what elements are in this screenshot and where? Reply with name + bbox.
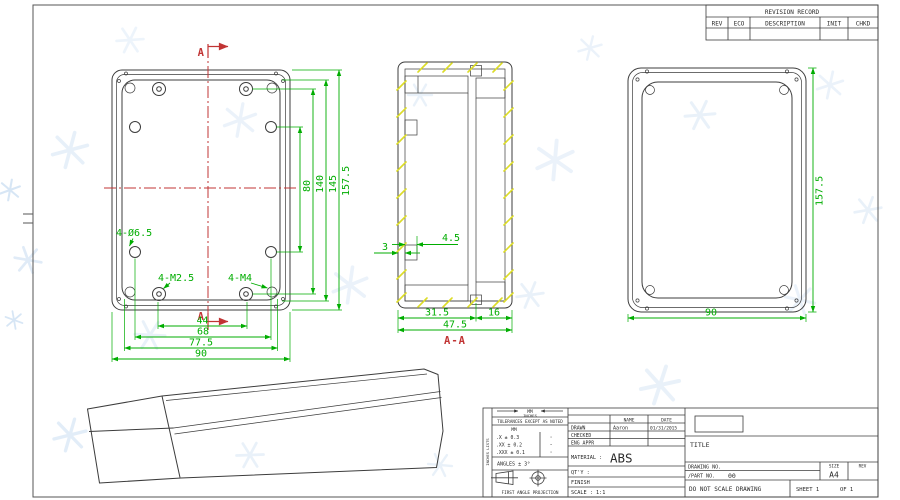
finish-label: FINISH <box>571 480 590 486</box>
drawn-date: 01/31/2015 <box>650 425 677 431</box>
material-value: ABS <box>610 451 633 466</box>
dim-77-5: 77.5 <box>189 338 213 349</box>
revision-table-title: REVISION RECORD <box>765 9 820 16</box>
tolerance-inch-1: · <box>549 434 553 441</box>
dim-140: 140 <box>315 175 326 193</box>
do-not-scale-note: DO NOT SCALE DRAWING <box>689 486 762 493</box>
tolerance-inch-3: · <box>549 449 553 456</box>
material-label: MATERIAL : <box>571 455 602 461</box>
callout-m4: 4-M4 <box>228 273 252 284</box>
checked-label: CHECKED <box>571 433 591 439</box>
revision-col-description: DESCRIPTION <box>765 21 805 28</box>
projection-symbol <box>491 470 547 487</box>
side-view: 157.5 90 <box>628 68 826 322</box>
corner-posts <box>118 72 285 308</box>
section-view: 4.5 3 31.5 16 47.5 A-A <box>374 62 513 347</box>
revision-col-init: INIT <box>827 21 842 28</box>
drawing-no-label: DRAWING NO. <box>688 465 721 471</box>
projection-note: FIRST ANGLE PROJECTION <box>502 490 559 496</box>
revision-table: REVISION RECORD REV ECO DESCRIPTION INIT… <box>706 5 878 40</box>
sheet-label: SHEET 1 <box>796 487 819 493</box>
callout-holes: 4-Ø6.5 <box>116 227 152 239</box>
rev-label: REV <box>859 464 867 470</box>
logo-box <box>695 416 743 432</box>
titleblock-side-note: INCHES LISTS <box>485 438 490 466</box>
dim-16: 16 <box>488 308 500 319</box>
tolerance-row-3: .XXX ± 0.1 <box>496 450 525 456</box>
drawing-canvas: REVISION RECORD REV ECO DESCRIPTION INIT… <box>0 0 900 500</box>
title-label: TITLE <box>690 441 710 449</box>
dim-68: 68 <box>197 327 209 338</box>
dim-4-5: 4.5 <box>442 233 460 244</box>
dim-3: 3 <box>382 242 388 253</box>
part-no-value: 00 <box>728 472 736 480</box>
tolerance-row-2: .XX ± 0.2 <box>496 443 522 449</box>
revision-col-eco: ECO <box>734 21 745 28</box>
units-inches: INCHES <box>523 413 537 418</box>
dim-44: 44 <box>196 316 208 327</box>
date-header: DATE <box>661 417 672 423</box>
callout-m25: 4-M2.5 <box>158 273 194 284</box>
wall-boss-upper <box>405 120 417 135</box>
revision-col-rev: REV <box>712 21 723 28</box>
qty-label: QT'Y : <box>571 470 590 476</box>
dim-31-5: 31.5 <box>425 308 449 319</box>
scale-label: SCALE : 1:1 <box>571 490 605 496</box>
section-mark-top: A <box>198 47 205 59</box>
tolerance-inch-2: · <box>549 442 553 449</box>
dim-90: 90 <box>195 349 207 360</box>
tolerance-note: TOLERANCES EXCEPT AS NOTED <box>497 419 563 424</box>
wall-boss-lower <box>405 245 417 260</box>
size-value: A4 <box>829 471 839 480</box>
sheet-frame <box>23 5 878 497</box>
drawn-name: Aaron <box>613 425 628 431</box>
tolerance-header: MM <box>511 427 517 433</box>
of-label: OF 1 <box>840 487 853 493</box>
tolerance-row-1: .X ± 0.3 <box>496 435 519 441</box>
section-label: A-A <box>444 335 466 347</box>
dim-145: 145 <box>328 175 339 193</box>
dim-47-5: 47.5 <box>443 320 467 331</box>
angles-tolerance: ANGLES ± 3° <box>497 462 530 468</box>
part-no-label: /PART NO. <box>688 474 715 480</box>
size-label: SIZE <box>829 464 840 470</box>
section-hatching <box>397 63 513 307</box>
drawing-sheet: REVISION RECORD REV ECO DESCRIPTION INIT… <box>0 0 900 500</box>
side-dim-90: 90 <box>705 308 717 319</box>
dim-157-5: 157.5 <box>341 166 352 196</box>
eng-appr-label: ENG APPR <box>571 441 594 447</box>
dim-80: 80 <box>302 180 313 192</box>
side-dim-157-5: 157.5 <box>815 176 826 206</box>
frame-centering-marks <box>23 214 33 223</box>
drawn-label: DRAWN <box>571 425 586 431</box>
title-block: INCHES LISTS MM INCHES TOLERANCES EXCEPT… <box>483 408 878 497</box>
isometric-view <box>88 369 444 483</box>
name-header: NAME <box>624 417 635 423</box>
revision-col-chkd: CHKD <box>856 21 871 28</box>
lid-corner-holes <box>636 70 798 310</box>
screw-bosses <box>153 83 253 301</box>
front-view: A A 80 140 145 157.5 44 68 77.5 90 4-Ø6.… <box>104 44 352 362</box>
